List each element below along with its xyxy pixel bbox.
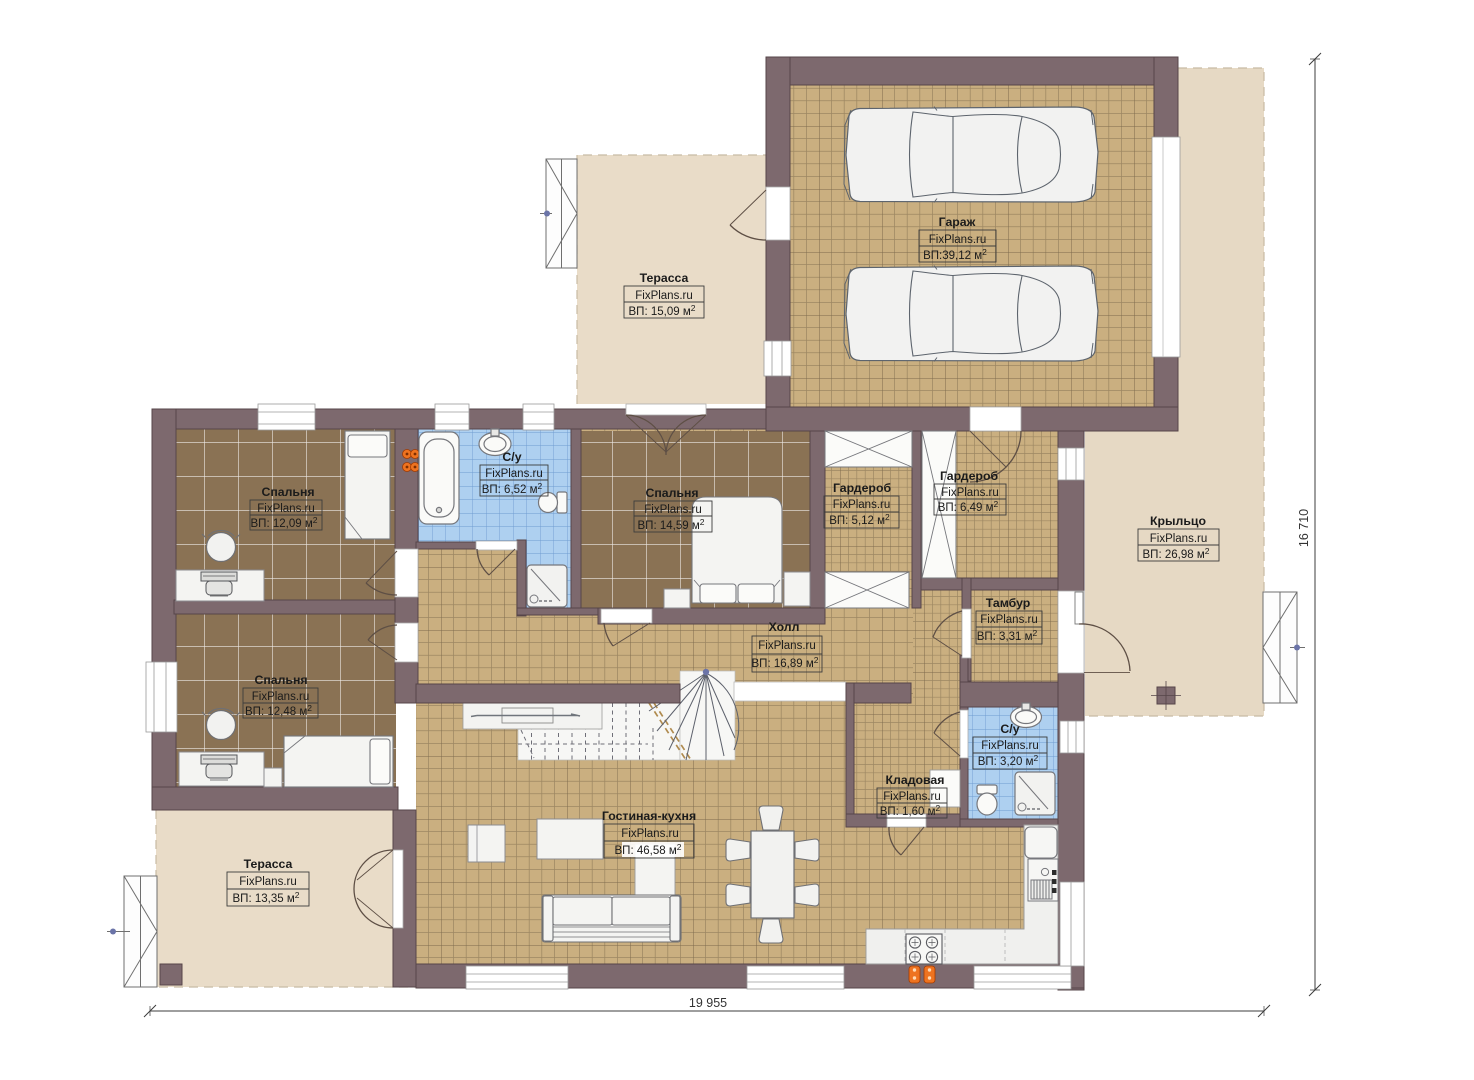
svg-text:Спальня: Спальня <box>261 485 314 499</box>
svg-text:ВП: 6,52 м2: ВП: 6,52 м2 <box>482 481 543 496</box>
svg-text:ВП: 14,59 м2: ВП: 14,59 м2 <box>638 517 705 532</box>
svg-text:Гардероб: Гардероб <box>833 481 892 495</box>
svg-text:ВП: 12,48 м2: ВП: 12,48 м2 <box>245 703 312 718</box>
svg-text:ВП: 1,60 м2: ВП: 1,60 м2 <box>880 803 941 818</box>
svg-text:Терасса: Терасса <box>244 857 293 871</box>
svg-text:ВП: 46,58 м2: ВП: 46,58 м2 <box>615 842 682 857</box>
svg-text:FixPlans.ru: FixPlans.ru <box>239 876 297 888</box>
svg-text:Гардероб: Гардероб <box>940 469 999 483</box>
svg-text:Холл: Холл <box>769 620 800 634</box>
svg-text:16 710: 16 710 <box>1297 509 1311 547</box>
svg-text:FixPlans.ru: FixPlans.ru <box>621 828 679 840</box>
svg-text:ВП:39,12 м2: ВП:39,12 м2 <box>923 247 987 262</box>
svg-text:ВП: 12,09 м2: ВП: 12,09 м2 <box>251 515 318 530</box>
svg-text:ВП: 5,12 м2: ВП: 5,12 м2 <box>829 512 890 527</box>
svg-text:FixPlans.ru: FixPlans.ru <box>758 640 816 652</box>
svg-text:FixPlans.ru: FixPlans.ru <box>257 503 315 515</box>
svg-text:Тамбур: Тамбур <box>986 596 1031 610</box>
svg-text:Терасса: Терасса <box>640 271 689 285</box>
svg-text:Спальня: Спальня <box>645 486 698 500</box>
svg-text:С/у: С/у <box>1000 722 1019 736</box>
svg-text:ВП: 15,09 м2: ВП: 15,09 м2 <box>629 303 696 318</box>
svg-text:FixPlans.ru: FixPlans.ru <box>941 487 999 499</box>
svg-text:Кладовая: Кладовая <box>886 773 945 787</box>
svg-text:ВП: 6,49 м2: ВП: 6,49 м2 <box>938 499 999 514</box>
svg-text:ВП: 3,20 м2: ВП: 3,20 м2 <box>978 753 1039 768</box>
svg-text:FixPlans.ru: FixPlans.ru <box>252 691 310 703</box>
svg-text:Спальня: Спальня <box>254 673 307 687</box>
svg-text:FixPlans.ru: FixPlans.ru <box>644 504 702 516</box>
svg-text:Гостиная-кухня: Гостиная-кухня <box>602 809 696 823</box>
svg-text:FixPlans.ru: FixPlans.ru <box>1150 533 1208 545</box>
svg-text:FixPlans.ru: FixPlans.ru <box>981 740 1039 752</box>
svg-text:ВП: 13,35 м2: ВП: 13,35 м2 <box>233 890 300 905</box>
svg-text:Крыльцо: Крыльцо <box>1150 514 1206 528</box>
svg-text:FixPlans.ru: FixPlans.ru <box>980 614 1038 626</box>
svg-text:FixPlans.ru: FixPlans.ru <box>929 234 987 246</box>
svg-text:С/у: С/у <box>502 450 521 464</box>
svg-text:Гараж: Гараж <box>939 215 976 229</box>
svg-text:FixPlans.ru: FixPlans.ru <box>833 499 891 511</box>
svg-text:FixPlans.ru: FixPlans.ru <box>635 290 693 302</box>
svg-text:ВП: 3,31 м2: ВП: 3,31 м2 <box>977 628 1038 643</box>
svg-text:19 955: 19 955 <box>689 996 727 1010</box>
svg-text:ВП: 26,98 м2: ВП: 26,98 м2 <box>1143 546 1210 561</box>
svg-text:ВП: 16,89 м2: ВП: 16,89 м2 <box>752 655 819 670</box>
svg-text:FixPlans.ru: FixPlans.ru <box>883 791 941 803</box>
svg-text:FixPlans.ru: FixPlans.ru <box>485 468 543 480</box>
